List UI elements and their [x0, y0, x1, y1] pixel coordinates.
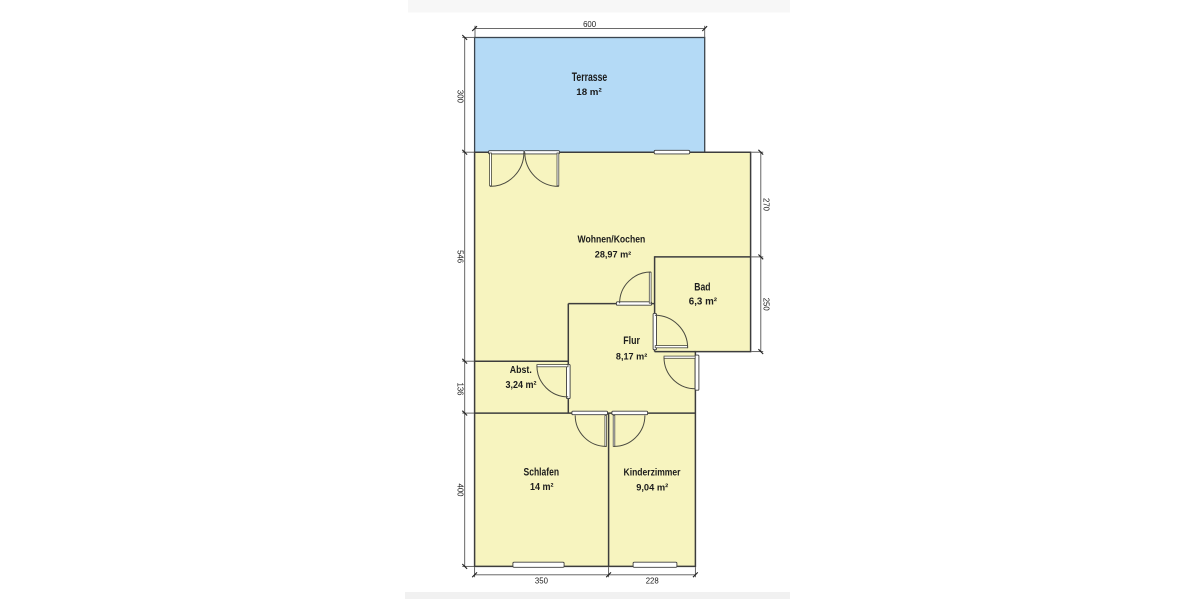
svg-text:Kinderzimmer: Kinderzimmer — [624, 468, 681, 479]
svg-text:600: 600 — [583, 20, 597, 29]
svg-text:270: 270 — [762, 198, 771, 212]
svg-text:300: 300 — [455, 90, 464, 104]
svg-text:546: 546 — [455, 250, 464, 263]
svg-text:Abst.: Abst. — [510, 365, 532, 376]
svg-text:136: 136 — [455, 382, 464, 395]
svg-text:28,97 m²: 28,97 m² — [595, 249, 631, 259]
svg-text:400: 400 — [455, 483, 464, 497]
svg-text:18 m²: 18 m² — [576, 86, 601, 97]
svg-text:Terrasse: Terrasse — [572, 70, 608, 84]
svg-text:Flur: Flur — [623, 335, 640, 347]
svg-text:250: 250 — [762, 298, 771, 312]
svg-text:228: 228 — [646, 577, 659, 586]
svg-text:Schlafen: Schlafen — [524, 467, 560, 479]
svg-text:6,3 m²: 6,3 m² — [689, 297, 718, 308]
svg-text:Wohnen/Kochen: Wohnen/Kochen — [578, 235, 646, 246]
svg-text:350: 350 — [535, 577, 549, 586]
svg-text:Bad: Bad — [694, 282, 710, 294]
svg-text:9,04 m²: 9,04 m² — [636, 482, 668, 493]
svg-text:8,17 m²: 8,17 m² — [616, 351, 647, 361]
svg-text:3,24 m²: 3,24 m² — [506, 380, 538, 391]
svg-text:14 m²: 14 m² — [530, 482, 554, 493]
